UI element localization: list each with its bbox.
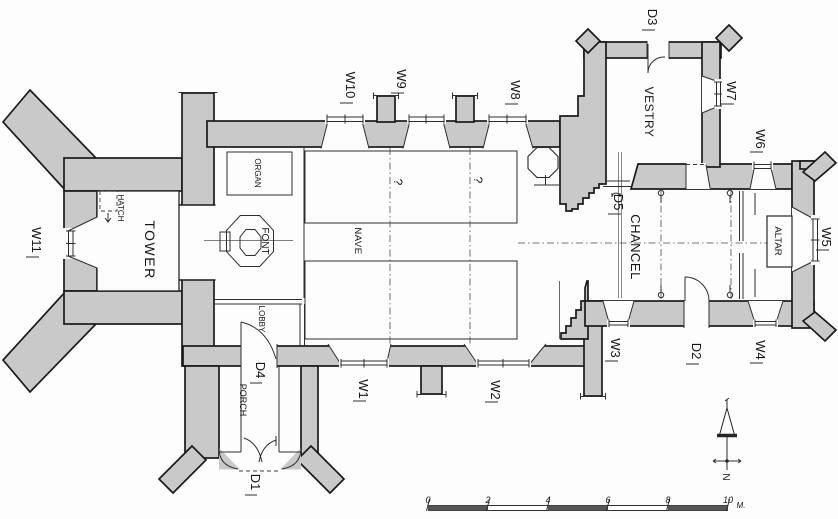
svg-text:D5: D5 — [611, 194, 626, 211]
svg-text:W11: W11 — [29, 227, 44, 253]
svg-text:W10: W10 — [343, 72, 358, 99]
svg-text:W6: W6 — [753, 129, 768, 149]
svg-text:8: 8 — [665, 495, 670, 505]
svg-text:4: 4 — [545, 495, 550, 505]
svg-text:W5: W5 — [819, 227, 834, 247]
svg-text:HATCH: HATCH — [116, 195, 125, 222]
svg-text:N: N — [720, 473, 731, 480]
svg-text:D1: D1 — [248, 474, 263, 491]
svg-text:0: 0 — [425, 495, 430, 505]
svg-text:D3: D3 — [645, 9, 660, 26]
svg-text:ORGAN: ORGAN — [253, 158, 262, 188]
svg-text:W3: W3 — [608, 338, 623, 358]
svg-text:D2: D2 — [689, 343, 704, 360]
svg-text:M.: M. — [737, 501, 746, 510]
svg-text:W1: W1 — [356, 379, 371, 399]
svg-text:NAVE: NAVE — [352, 227, 363, 254]
svg-text:W7: W7 — [724, 81, 739, 101]
svg-text:LOBBY: LOBBY — [257, 306, 266, 333]
svg-text:PORCH: PORCH — [238, 384, 248, 417]
svg-text:6: 6 — [605, 495, 610, 505]
svg-text:?: ? — [391, 179, 405, 186]
svg-text:W8: W8 — [508, 80, 523, 100]
svg-text:TOWER: TOWER — [142, 220, 158, 279]
svg-text:W9: W9 — [394, 69, 409, 89]
svg-text:2: 2 — [484, 495, 490, 505]
svg-text:VESTRY: VESTRY — [642, 87, 656, 138]
svg-text:CHANCEL: CHANCEL — [628, 214, 643, 280]
svg-text:FONT: FONT — [259, 227, 270, 254]
svg-text:?: ? — [471, 177, 485, 184]
svg-text:W4: W4 — [753, 340, 768, 360]
svg-text:W2: W2 — [488, 380, 503, 400]
svg-text:10: 10 — [723, 495, 733, 505]
svg-text:D4: D4 — [253, 362, 268, 379]
svg-text:ALTAR: ALTAR — [772, 226, 783, 255]
